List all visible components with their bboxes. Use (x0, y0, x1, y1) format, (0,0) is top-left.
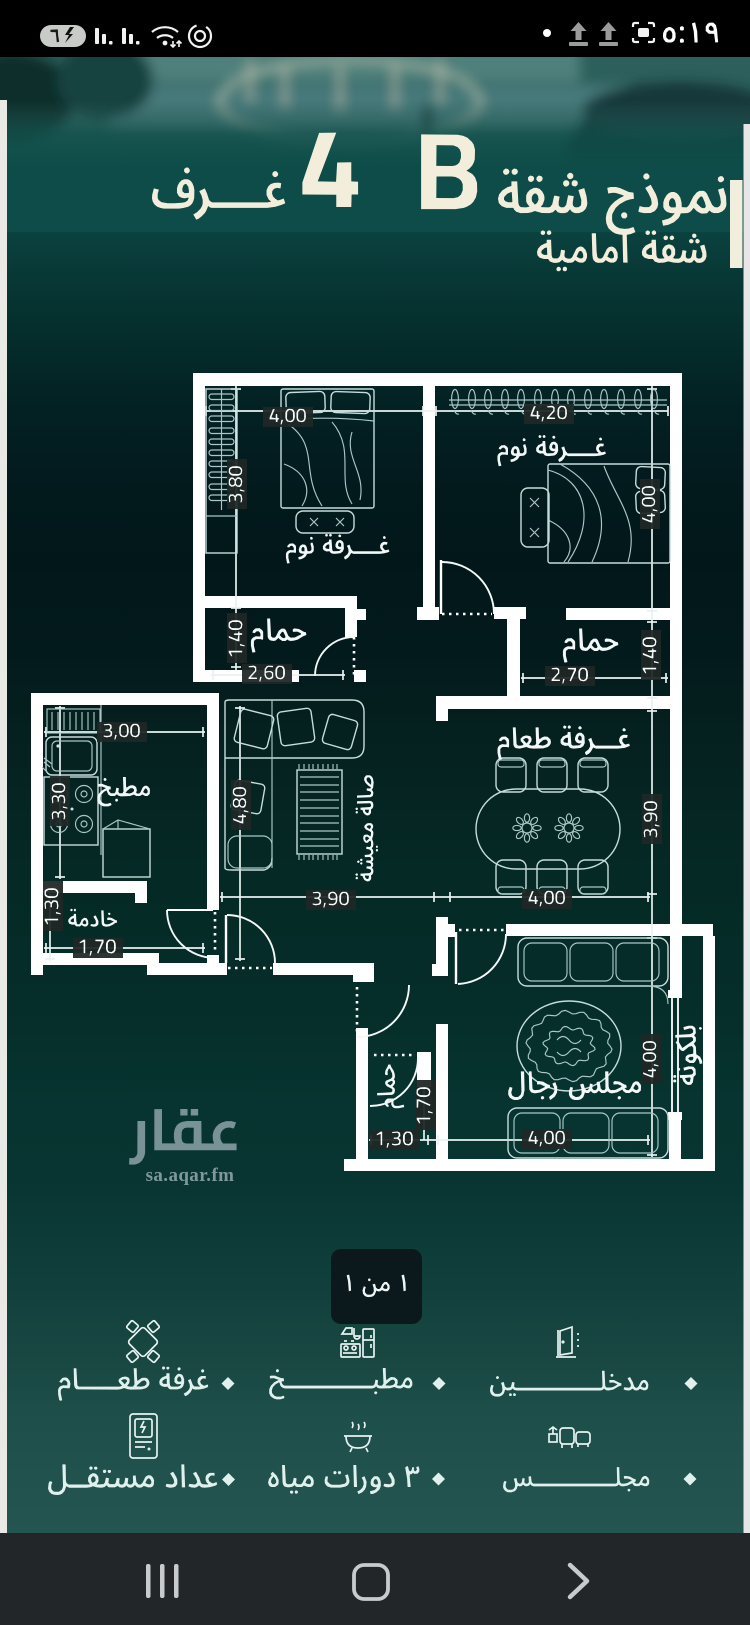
svg-text:sa.aqar.fm: sa.aqar.fm (146, 1165, 235, 1186)
